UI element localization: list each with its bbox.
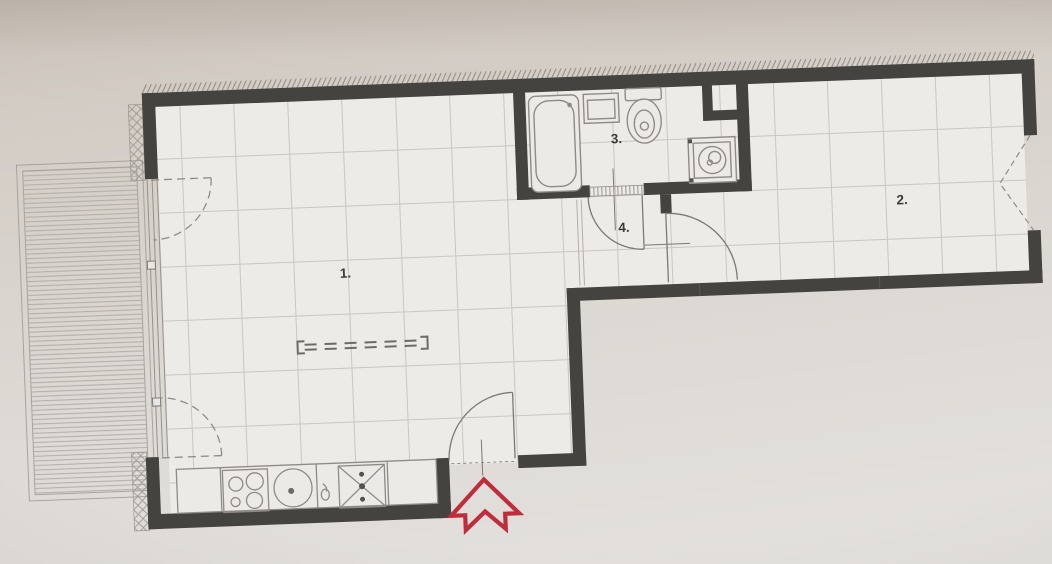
washbasin-icon bbox=[583, 93, 619, 123]
wall-entrance-step bbox=[436, 458, 451, 518]
wall-hallway-stub bbox=[660, 194, 672, 213]
wall-end-hatch-top-left bbox=[128, 104, 145, 180]
room-label-bedroom: 2. bbox=[896, 192, 908, 207]
washing-machine-icon bbox=[688, 137, 737, 184]
bathtub-icon bbox=[528, 95, 582, 193]
balcony bbox=[16, 160, 155, 501]
wall-right-lower bbox=[1028, 230, 1043, 283]
entrance-arrow-icon bbox=[450, 478, 520, 531]
bathroom-threshold bbox=[590, 185, 644, 196]
room-label-living: 1. bbox=[340, 265, 352, 280]
room-label-bathroom: 3. bbox=[611, 131, 623, 146]
wall-duct-horizontal bbox=[703, 109, 749, 121]
floor-plan-drawing: 1. 2. 3. 4. bbox=[0, 0, 1052, 564]
floor-plan-photo: 1. 2. 3. 4. bbox=[0, 0, 1052, 564]
toilet-icon bbox=[625, 87, 663, 143]
plan-rotated-group: 1. 2. 3. 4. bbox=[14, 50, 1052, 547]
balcony-deck bbox=[23, 167, 149, 495]
room-label-hallway: 4. bbox=[618, 220, 630, 235]
